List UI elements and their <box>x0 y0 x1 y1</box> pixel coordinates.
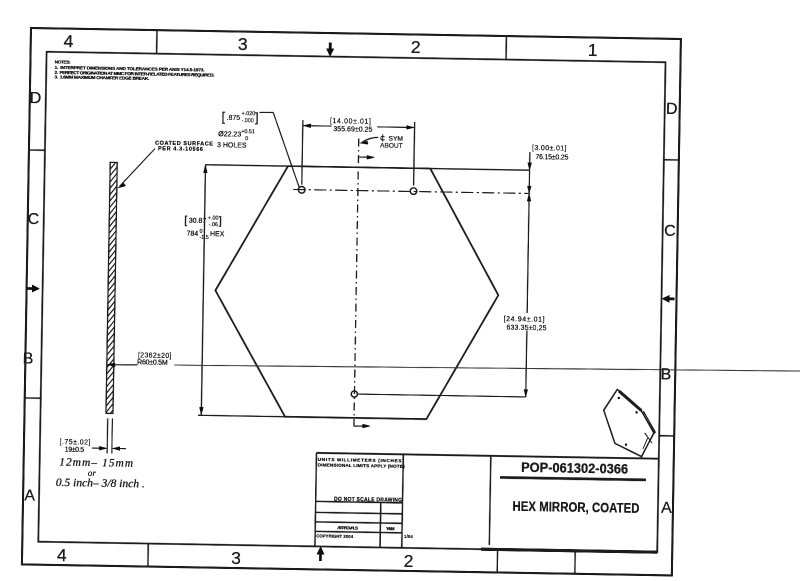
svg-text:+0.51: +0.51 <box>241 129 255 135</box>
svg-text:0: 0 <box>245 136 248 142</box>
svg-text:355.69±0.25: 355.69±0.25 <box>333 126 372 134</box>
svg-text:C: C <box>28 211 40 228</box>
svg-text:[14.00±.01]: [14.00±.01] <box>330 118 371 126</box>
svg-text:POP-061302-0366: POP-061302-0366 <box>521 460 629 477</box>
svg-text:3 HOLES: 3 HOLES <box>217 142 247 150</box>
svg-text:784: 784 <box>186 231 198 238</box>
svg-text:633.35±0,25: 633.35±0,25 <box>506 324 546 332</box>
svg-text:NOTES:: NOTES: <box>55 59 71 65</box>
svg-text:Ø22.23: Ø22.23 <box>218 131 241 138</box>
svg-text:PER 4.3-10566: PER 4.3-10566 <box>158 146 203 153</box>
svg-text:+.020: +.020 <box>242 111 256 117</box>
svg-text:A: A <box>24 488 35 505</box>
svg-text:-.06: -.06 <box>209 222 218 228</box>
svg-text:2: 2 <box>403 551 413 571</box>
svg-text:4: 4 <box>64 31 74 51</box>
svg-text:12mm– 15mm: 12mm– 15mm <box>59 457 133 470</box>
svg-text:[: [ <box>184 215 187 227</box>
svg-text:A: A <box>661 500 672 517</box>
svg-text:30.87: 30.87 <box>189 218 207 225</box>
svg-text:76.15±0.25: 76.15±0.25 <box>535 154 568 162</box>
svg-text:1: 1 <box>588 40 598 60</box>
svg-text:D: D <box>29 90 41 107</box>
svg-text:ABOUT: ABOUT <box>380 143 403 150</box>
svg-text:HEX MIRROR, COATED: HEX MIRROR, COATED <box>512 499 639 516</box>
svg-text:]: ] <box>219 215 222 227</box>
svg-text:COPYRIGHT 2004: COPYRIGHT 2004 <box>316 533 354 539</box>
svg-text:[24.94±.01]: [24.94±.01] <box>504 316 545 324</box>
svg-text:DO NOT SCALE DRAWING: DO NOT SCALE DRAWING <box>334 497 402 504</box>
svg-text:3: 3 <box>231 548 241 568</box>
svg-text:1/04: 1/04 <box>404 534 414 539</box>
svg-text:YY-MM: YY-MM <box>386 526 395 531</box>
svg-text:3: 3 <box>238 34 248 54</box>
svg-text:R60±0.5M: R60±0.5M <box>137 359 168 367</box>
svg-text:-.000: -.000 <box>241 118 253 124</box>
svg-text:B: B <box>660 366 671 383</box>
svg-text:19±0.5: 19±0.5 <box>65 446 85 453</box>
svg-text:[3.00±.01]: [3.00±.01] <box>532 145 567 153</box>
svg-text:-1.5: -1.5 <box>199 235 208 241</box>
svg-text:HEX: HEX <box>210 231 225 238</box>
svg-text:2: 2 <box>411 37 421 57</box>
svg-text:[: [ <box>221 109 225 124</box>
svg-text:APPROVALS: APPROVALS <box>337 525 358 530</box>
svg-text:B: B <box>23 350 34 367</box>
svg-text:.875: .875 <box>226 115 240 122</box>
svg-text:D: D <box>666 101 678 118</box>
svg-text:0.5 inch– 3/8 inch .: 0.5 inch– 3/8 inch . <box>56 477 145 491</box>
svg-text:]: ] <box>255 110 259 125</box>
svg-text:+.00: +.00 <box>208 216 219 222</box>
svg-text:4: 4 <box>57 545 67 565</box>
svg-text:C: C <box>664 223 676 240</box>
